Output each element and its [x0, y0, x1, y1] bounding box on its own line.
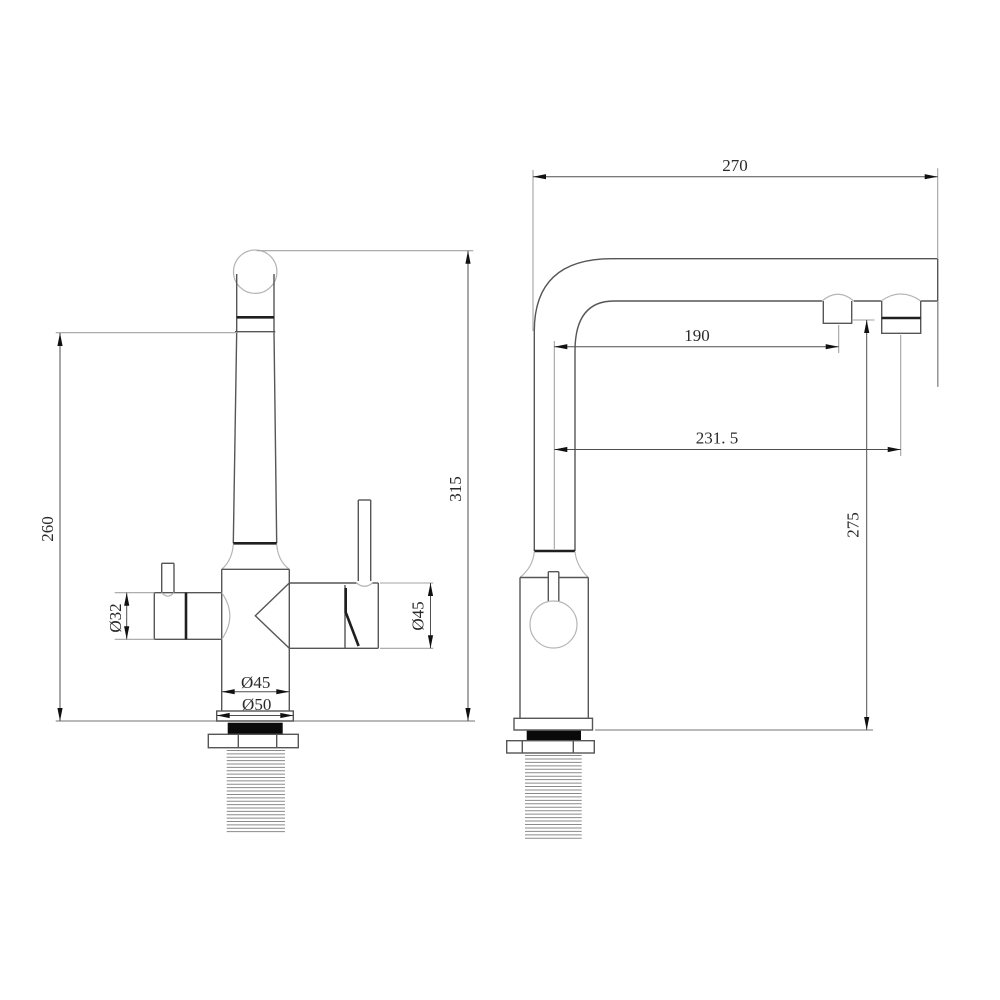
left-valve-assembly — [154, 563, 221, 639]
rubber-gasket — [228, 723, 283, 735]
mounting-nut — [208, 734, 298, 747]
handle-stem-side — [548, 572, 559, 601]
dim-label-o45-right: Ø45 — [409, 601, 428, 630]
threaded-shank-front — [227, 751, 285, 832]
dim-spout-height: 275 — [844, 320, 875, 730]
left-joint-bulge — [222, 593, 230, 640]
dim-right-handle-diameter: Ø45 — [380, 583, 433, 648]
rubber-gasket-side — [527, 731, 581, 740]
mounting-nut-side — [507, 741, 595, 753]
bell-flare-left — [222, 545, 234, 570]
faucet-body-side — [520, 572, 588, 719]
dim-base-diameter: Ø50 — [217, 695, 294, 718]
bell-flare-right — [277, 545, 290, 570]
dim-label-o32: Ø32 — [106, 603, 125, 632]
spout-column-front — [222, 250, 290, 569]
technical-drawing-page: 260 315 Ø32 Ø45 — [0, 0, 1000, 1000]
base-flange-side — [514, 718, 593, 730]
outlet2-dome — [881, 294, 921, 301]
handle-hub-circle — [530, 601, 577, 648]
dim-body-diameter: Ø45 — [222, 673, 290, 694]
right-lever-diagonal — [346, 613, 359, 646]
side-view: 270 190 231. 5 275 — [507, 156, 938, 838]
threaded-shank-side — [525, 756, 582, 839]
dim-height-to-spout: 260 — [38, 333, 237, 721]
dim-label-190: 190 — [684, 326, 710, 345]
dim-label-315: 315 — [446, 476, 465, 502]
right-joint-cone — [255, 583, 289, 648]
dim-label-260: 260 — [38, 516, 57, 542]
front-view: 260 315 Ø32 Ø45 — [38, 250, 475, 832]
spout-bend-circle — [234, 250, 277, 293]
dim-reach-overall: 270 — [533, 156, 938, 387]
dim-left-handle-diameter: Ø32 — [106, 593, 154, 640]
dim-label-270: 270 — [722, 156, 748, 175]
outlet1-dome — [822, 294, 854, 301]
dim-reach-outlet-2: 231. 5 — [554, 335, 900, 456]
dim-label-231-5: 231. 5 — [696, 429, 739, 448]
base-assembly-front — [208, 711, 298, 832]
dim-label-o50: Ø50 — [242, 695, 271, 714]
right-valve-assembly — [289, 500, 378, 648]
base-assembly-side — [507, 718, 595, 838]
dim-label-275: 275 — [844, 512, 863, 538]
outlet1-box — [823, 301, 851, 323]
spout-arm-side — [520, 259, 938, 578]
dim-label-o45-body: Ø45 — [241, 673, 270, 692]
faucet-technical-drawing: 260 315 Ø32 Ø45 — [0, 0, 1000, 1000]
